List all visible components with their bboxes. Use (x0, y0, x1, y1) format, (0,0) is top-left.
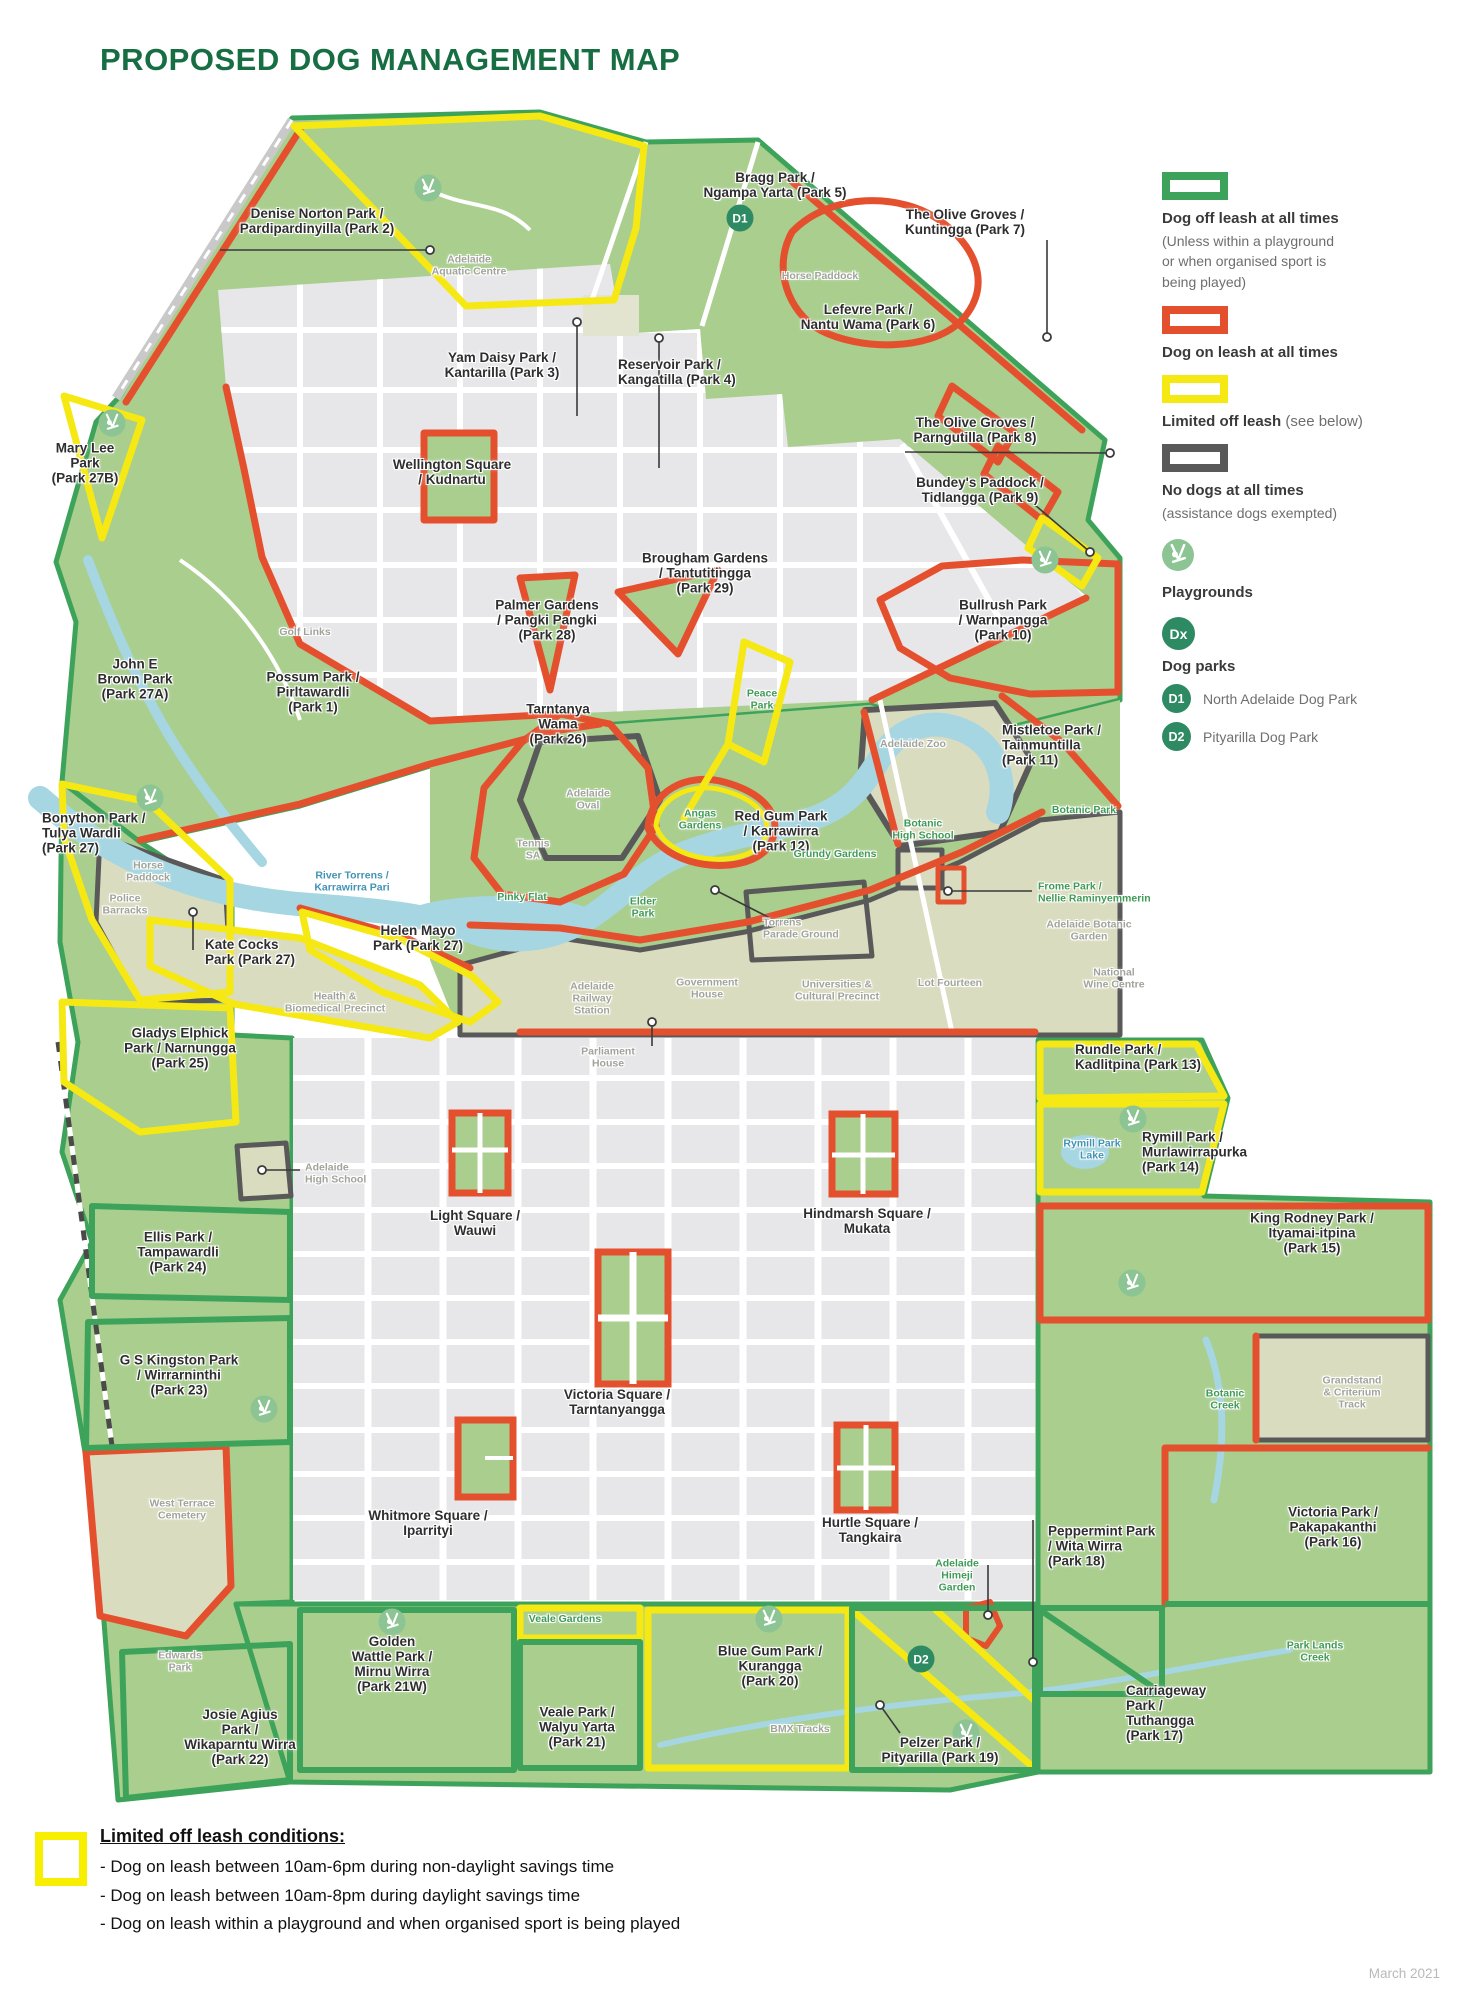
map-date: March 2021 (1369, 1966, 1440, 1981)
playground-icon (1162, 539, 1194, 571)
dog-park-row-d1: D1 North Adelaide Dog Park (1162, 684, 1462, 713)
playgrounds-label: Playgrounds (1162, 584, 1462, 601)
off-leash-label: Dog off leash at all times (1162, 210, 1462, 227)
d2-badge-icon: D2 (1162, 722, 1191, 751)
d2-label: Pityarilla Dog Park (1203, 729, 1318, 745)
on-leash-swatch-icon (1162, 306, 1228, 334)
d1-badge-icon: D1 (1162, 684, 1191, 713)
condition-line: - Dog on leash within a playground and w… (100, 1910, 1300, 1939)
limited-label: Limited off leash (see below) (1162, 413, 1462, 430)
rymill-lake-shape (1061, 1135, 1109, 1169)
dog-park-row-d2: D2 Pityarilla Dog Park (1162, 722, 1462, 751)
page: { "title": "PROPOSED DOG MANAGEMENT MAP"… (0, 0, 1472, 2000)
legend: Dog off leash at all times (Unless withi… (1162, 158, 1462, 751)
dog-parks-label: Dog parks (1162, 658, 1462, 675)
conditions-footer: Limited off leash conditions: - Dog on l… (35, 1826, 1300, 1939)
dog-park-generic-badge-icon: Dx (1162, 617, 1195, 650)
no-dogs-label: No dogs at all times (1162, 482, 1462, 499)
limited-label-note: (see below) (1281, 413, 1363, 430)
limited-off-leash-swatch-icon (35, 1832, 87, 1886)
off-leash-note: (Unless within a playground or when orga… (1162, 231, 1462, 292)
no-dogs-note: (assistance dogs exempted) (1162, 503, 1462, 523)
condition-line: - Dog on leash between 10am-8pm during d… (100, 1882, 1300, 1911)
no-dogs-swatch-icon (1162, 444, 1228, 472)
condition-line: - Dog on leash between 10am-6pm during n… (100, 1853, 1300, 1882)
on-leash-label: Dog on leash at all times (1162, 344, 1462, 361)
limited-swatch-icon (1162, 375, 1228, 403)
d1-label: North Adelaide Dog Park (1203, 691, 1357, 707)
off-leash-swatch-icon (1162, 172, 1228, 200)
limited-label-bold: Limited off leash (1162, 413, 1281, 430)
conditions-heading: Limited off leash conditions: (100, 1826, 1300, 1847)
